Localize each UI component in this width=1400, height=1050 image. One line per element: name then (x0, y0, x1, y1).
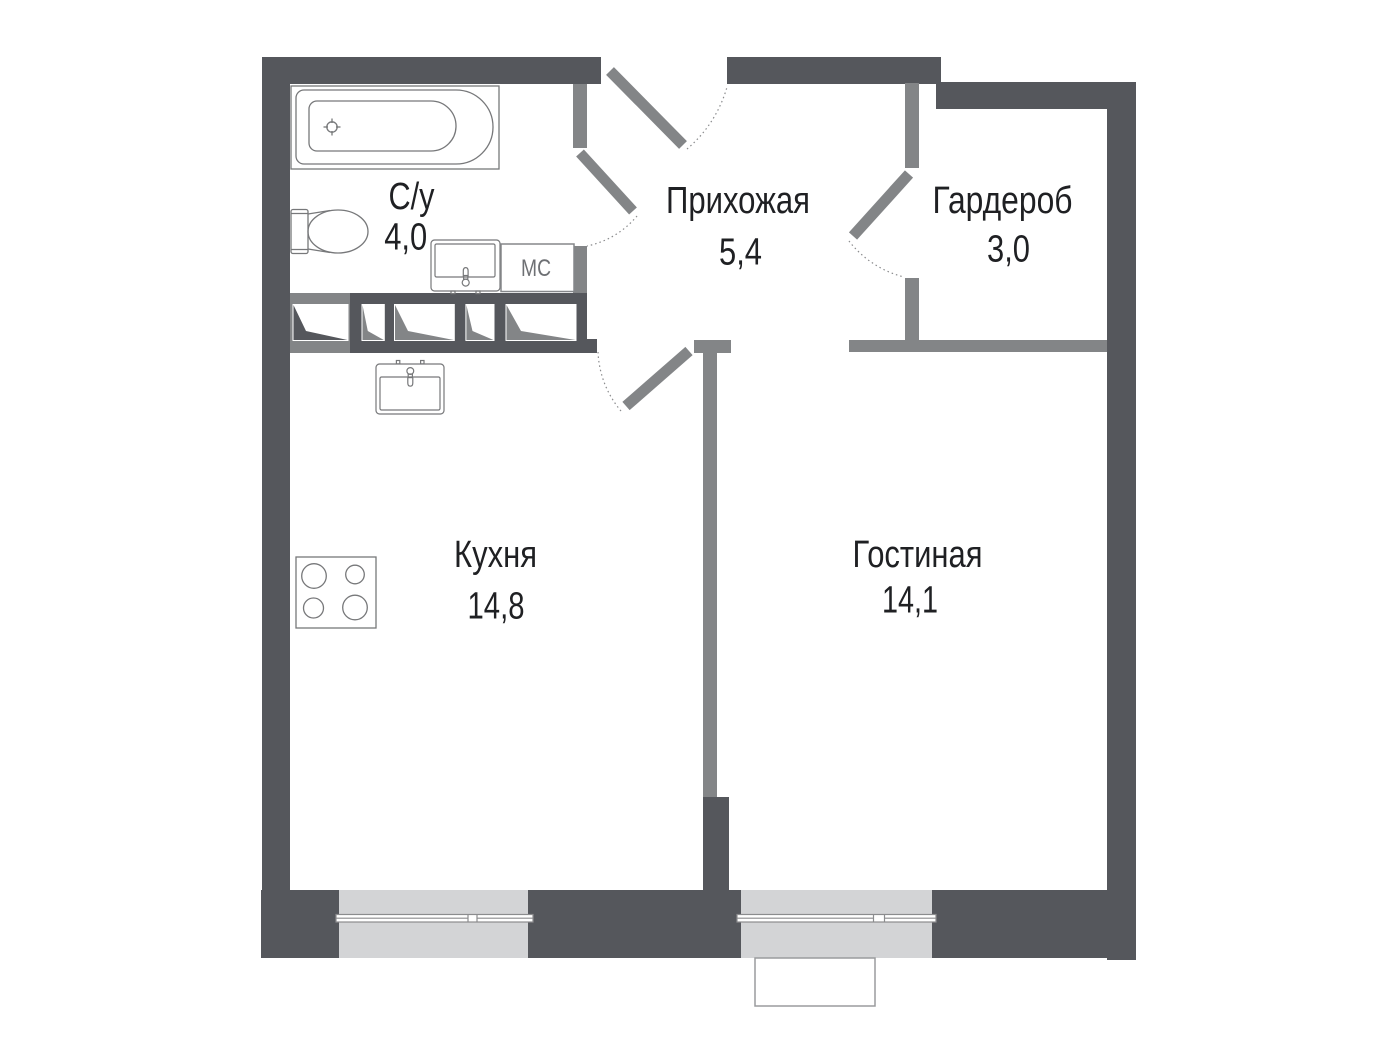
svg-text:3,0: 3,0 (987, 229, 1030, 271)
svg-text:Гостиная: Гостиная (853, 534, 983, 576)
svg-text:Прихожая: Прихожая (666, 180, 810, 222)
svg-text:14,8: 14,8 (468, 586, 525, 628)
svg-text:С/у: С/у (389, 176, 435, 218)
svg-text:14,1: 14,1 (882, 580, 938, 622)
svg-text:Кухня: Кухня (454, 534, 537, 576)
svg-text:Гардероб: Гардероб (933, 180, 1073, 222)
svg-text:4,0: 4,0 (384, 217, 427, 259)
svg-text:5,4: 5,4 (719, 232, 762, 274)
svg-text:МС: МС (521, 255, 551, 282)
